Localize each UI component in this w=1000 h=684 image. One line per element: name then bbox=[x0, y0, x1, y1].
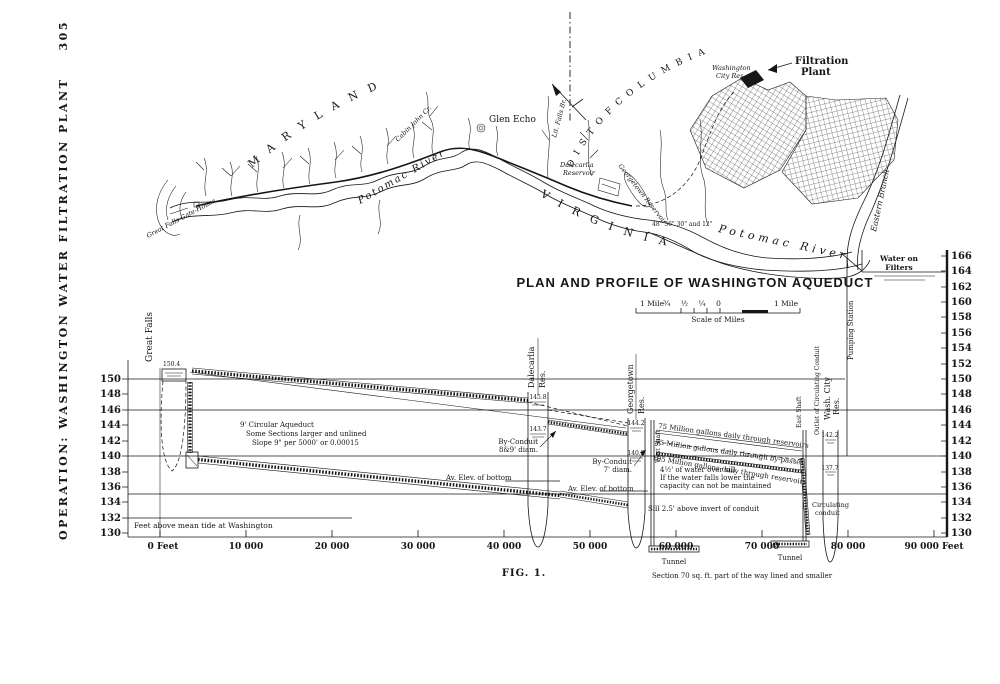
region-label-district: D I S T O F C O L U M B I A bbox=[566, 47, 709, 170]
scale-right-label: 1 Mile bbox=[774, 299, 799, 308]
right-tick-144: 144 bbox=[951, 420, 972, 431]
dalecarlia-reservoir-profile bbox=[528, 338, 628, 547]
lit-falls-br-label: Lit. Falls Br. bbox=[550, 98, 568, 140]
av-elev-bottom-2: Av. Elev. of bottom bbox=[567, 485, 634, 493]
left-tick-134: 134 bbox=[100, 497, 121, 508]
right-tick-160: 160 bbox=[951, 297, 972, 308]
right-tick-158: 158 bbox=[951, 312, 972, 323]
dalecarlia-res-label-2: Res. bbox=[538, 371, 547, 388]
elev-wash-city-low: 137.7 bbox=[821, 465, 838, 472]
right-tick-164: 164 bbox=[951, 266, 972, 277]
outlet-circulating-conduit-label: Outlet of Circulating Conduit bbox=[814, 346, 821, 435]
glen-echo-mark-inner bbox=[479, 126, 483, 130]
aqueduct-note-line2: Some Sections larger and unlined bbox=[246, 430, 367, 438]
right-tick-148: 148 bbox=[951, 389, 972, 400]
right-tick-138: 138 bbox=[951, 467, 972, 478]
washington-city-res-label-1: Washington bbox=[712, 64, 751, 72]
left-tick-140: 140 bbox=[100, 451, 121, 462]
georgetown-reservoir-label: Georgetown Reservoir bbox=[616, 162, 669, 226]
scale-left-label: 1 Mile bbox=[640, 299, 665, 308]
datum-note: Feet above mean tide at Washington bbox=[134, 521, 273, 530]
pumping-station-label: Pumping Station bbox=[847, 300, 855, 360]
scale-caption: Scale of Miles bbox=[691, 315, 745, 324]
region-label-virginia: V I R G I N I A bbox=[538, 187, 672, 249]
upper-conduit bbox=[190, 368, 628, 428]
tunnel-label-2: Tunnel bbox=[778, 554, 803, 562]
region-label-maryland-text: M A R Y L A N D bbox=[246, 78, 383, 170]
sill-note-4: Sill 2.5' above invert of conduit bbox=[648, 505, 759, 513]
cabin-john-cr-label: Cabin John Cr. bbox=[394, 104, 433, 143]
conduit-sizes-label: 48" 36" 30" and 12" bbox=[652, 221, 713, 228]
glen-echo-label: Glen Echo bbox=[489, 115, 536, 125]
filtration-plant-arrow bbox=[768, 63, 792, 73]
right-tick-140: 140 bbox=[951, 451, 972, 462]
x-tick-30000: 30 000 bbox=[401, 542, 435, 552]
aqueduct-note-line1: 9' Circular Aqueduct bbox=[240, 421, 314, 429]
right-tick-130: 130 bbox=[951, 528, 972, 539]
circulating-conduit-label-1: Circulating bbox=[812, 501, 849, 509]
great-falls-structure bbox=[160, 368, 198, 537]
elev-wash-city-high: 142.2 bbox=[821, 432, 838, 439]
bottom-axis-labels: 0 Feet 10 000 20 000 30 000 40 000 50 00… bbox=[148, 542, 965, 552]
georgetown-res-label-2: Res. bbox=[637, 397, 646, 414]
left-axis-labels: 150 148 146 144 142 140 138 136 134 132 … bbox=[100, 374, 121, 539]
map-plan: M A R Y L A N D D I S T O F C O L U M B … bbox=[145, 12, 908, 278]
filtration-plant-label-2: Plant bbox=[801, 67, 831, 78]
elev-dalecarlia-high: 145.8 bbox=[529, 394, 546, 401]
page-margin-caption: OPERATION: WASHINGTON WATER FILTRATION P… bbox=[52, 20, 74, 540]
figure-caption: FIG. 1. bbox=[502, 568, 546, 579]
right-tick-146: 146 bbox=[951, 405, 972, 416]
left-tick-136: 136 bbox=[100, 482, 121, 493]
tunnel-label-1: Tunnel bbox=[662, 558, 687, 566]
bottom-axis-ticks bbox=[160, 530, 934, 537]
gatehouse-label: Great Falls Gate-House bbox=[145, 197, 217, 240]
dalecarlia-reservoir-label-2: Reservoir bbox=[562, 169, 596, 177]
left-tick-130: 130 bbox=[100, 528, 121, 539]
water-on-filters-label-1: Water on bbox=[879, 254, 918, 263]
section-note: Section 70 sq. ft. part of the way lined… bbox=[652, 572, 833, 580]
region-label-district-text: D I S T O F C O L U M B I A bbox=[566, 47, 709, 170]
sill-note-3: capacity can not be maintained bbox=[660, 482, 772, 490]
aqueduct-note-line3: Slope 9" per 5000' or 0.00015 bbox=[252, 439, 359, 447]
left-tick-132: 132 bbox=[100, 513, 121, 524]
x-tick-40000: 40 000 bbox=[487, 542, 521, 552]
east-shaft-label: East Shaft bbox=[796, 396, 803, 428]
left-tick-146: 146 bbox=[100, 405, 121, 416]
glen-echo-mark bbox=[477, 124, 485, 132]
right-tick-152: 152 bbox=[951, 359, 972, 370]
georgetown-res-label-1: Georgetown bbox=[626, 364, 635, 414]
figure-1: M A R Y L A N D D I S T O F C O L U M B … bbox=[0, 0, 1000, 684]
left-tick-150: 150 bbox=[100, 374, 121, 385]
scale-bar bbox=[636, 308, 800, 313]
right-tick-132: 132 bbox=[951, 513, 972, 524]
washington-city-res-label-2: City Res. bbox=[716, 72, 746, 80]
region-label-virginia-text: V I R G I N I A bbox=[538, 187, 672, 249]
right-tick-166: 166 bbox=[951, 251, 972, 262]
great-falls-label: Great Falls bbox=[145, 312, 155, 362]
dalecarlia-res-label-1: Dalecarlia bbox=[527, 346, 536, 388]
right-tick-162: 162 bbox=[951, 282, 972, 293]
sill-note-1: 4½' of water over sill bbox=[660, 466, 736, 474]
av-elev-bottom-1: Av. Elev. of bottom bbox=[445, 474, 512, 482]
x-tick-20000: 20 000 bbox=[315, 542, 349, 552]
scale-fractions: ¾ ½ ¼ 0 bbox=[663, 299, 725, 308]
elev-great-falls: 150.4 bbox=[163, 361, 180, 368]
circulating-conduit-label-2: conduit bbox=[815, 509, 840, 517]
tributary-creeks bbox=[196, 92, 708, 250]
by-conduit-2-label: By-Conduit bbox=[592, 458, 632, 466]
x-tick-0: 0 Feet bbox=[148, 542, 180, 552]
scanned-page: { "page": { "side_caption": "OPERATION: … bbox=[0, 0, 1000, 684]
sill-note-2: If the water falls lower the bbox=[660, 474, 755, 482]
x-tick-10000: 10 000 bbox=[229, 542, 263, 552]
right-tick-134: 134 bbox=[951, 497, 972, 508]
profile-chart: PLAN AND PROFILE OF WASHINGTON AQUEDUCT … bbox=[100, 250, 972, 580]
profile-title: PLAN AND PROFILE OF WASHINGTON AQUEDUCT bbox=[516, 275, 873, 290]
right-tick-142: 142 bbox=[951, 436, 972, 447]
water-on-filters-label-2: Filters bbox=[885, 263, 912, 272]
left-tick-138: 138 bbox=[100, 467, 121, 478]
page-number: 305 bbox=[57, 20, 70, 50]
potomac-river-upper-label: Potomac River bbox=[355, 147, 448, 207]
right-tick-154: 154 bbox=[951, 343, 972, 354]
right-tick-156: 156 bbox=[951, 328, 972, 339]
left-tick-142: 142 bbox=[100, 436, 121, 447]
by-conduit-2-diam: 7' diam. bbox=[604, 466, 632, 474]
x-tick-50000: 50 000 bbox=[573, 542, 607, 552]
right-tick-150: 150 bbox=[951, 374, 972, 385]
right-axis-labels: 166 164 162 160 158 156 154 152 150 148 … bbox=[951, 251, 972, 539]
bottom-profile bbox=[198, 456, 648, 508]
left-tick-148: 148 bbox=[100, 389, 121, 400]
filtration-plant-label-1: Filtration bbox=[795, 56, 849, 67]
right-tick-136: 136 bbox=[951, 482, 972, 493]
dalecarlia-reservoir-label-1: Dalecarlia bbox=[559, 161, 594, 169]
elev-dalecarlia-low: 143.7 bbox=[529, 426, 546, 433]
by-conduit-1-diam: 8&9' diam. bbox=[499, 446, 538, 454]
elev-georgetown-high: 144.2 bbox=[627, 420, 644, 427]
x-tick-60000: 60 000 bbox=[659, 542, 693, 552]
wash-city-res-label-1: Wash. City bbox=[823, 376, 832, 420]
left-tick-144: 144 bbox=[100, 420, 121, 431]
by-conduit-1-label: By-Conduit bbox=[498, 438, 538, 446]
potomac-river-lower-label: Potomac River bbox=[716, 222, 850, 263]
wash-city-res-label-2: Res. bbox=[832, 398, 841, 415]
left-axis-ticks bbox=[122, 379, 128, 533]
running-title: OPERATION: WASHINGTON WATER FILTRATION P… bbox=[57, 78, 70, 540]
region-label-maryland: M A R Y L A N D bbox=[246, 78, 383, 170]
x-tick-90000: 90 000 Feet bbox=[904, 542, 964, 552]
